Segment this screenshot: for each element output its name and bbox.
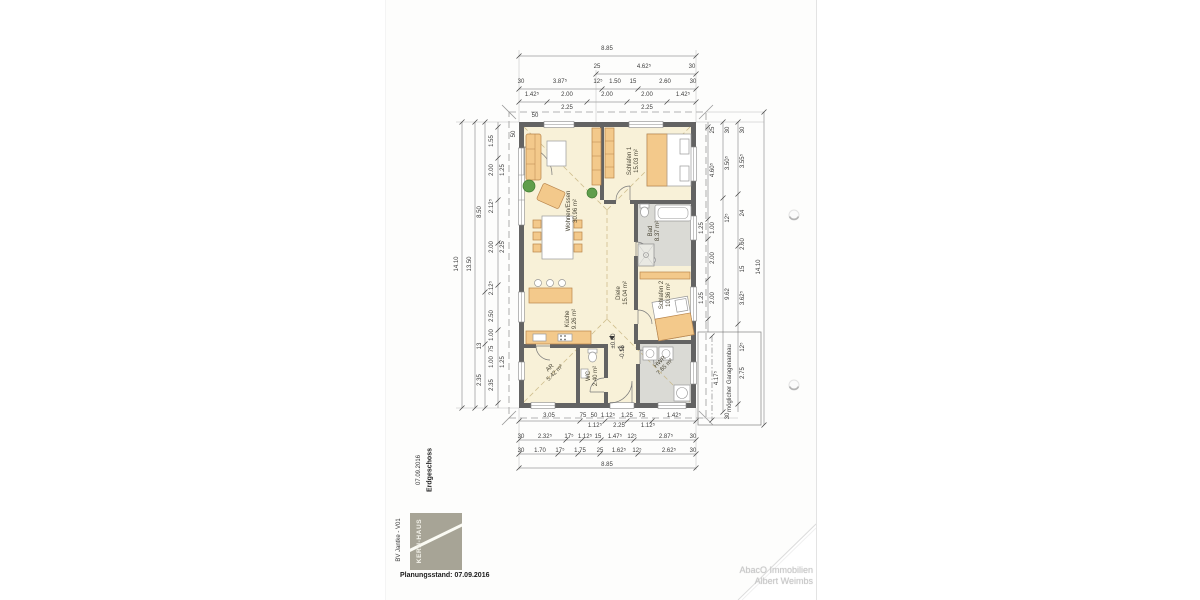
dim-label: 1.47⁵ — [608, 434, 622, 440]
dim-label: 14.10 — [454, 256, 460, 271]
floor-title: Erdgeschoss — [427, 448, 434, 492]
dim-label: 2.75 — [740, 367, 746, 379]
kern-haus-logo: KERN-HAUS — [410, 513, 462, 570]
dim-label: 15 — [740, 266, 746, 273]
room-label-wc: WC 2.40 m² — [586, 366, 600, 386]
dim-label: 1.62⁵ — [612, 448, 626, 454]
dim-label: 3.87⁵ — [553, 79, 567, 85]
dim-label: 13.50 — [467, 256, 473, 271]
logo-text: KERN-HAUS — [417, 519, 424, 563]
room-name: Diele — [616, 286, 623, 300]
floorplan-drawing — [386, 0, 816, 600]
room-label-schlafen1: Schlafen 1 15.03 m² — [627, 147, 641, 175]
dim-label: 2.62⁵ — [662, 448, 676, 454]
dim-label: 4.62⁵ — [637, 64, 651, 70]
dim-label: 2.25 — [613, 423, 625, 429]
room-label-diele: Diele 15.04 m² — [616, 281, 630, 305]
garage-note-label: möglicher Garagenanbau — [727, 344, 733, 412]
scanned-floorplan-page: 8.85 25 4.62⁵ 30 30 3.87⁵ 12⁵ 1.50 15 2.… — [0, 0, 1200, 600]
dim-label: 2.00 — [489, 164, 495, 176]
room-area: 8.37 m² — [655, 221, 662, 241]
punch-holes — [789, 210, 799, 390]
dim-label: 17⁵ — [564, 434, 573, 440]
dim-label: 8.50 — [477, 206, 483, 218]
dim-label: 1.00 — [489, 356, 495, 368]
room-label-wohnen-essen: Wohnen/Essen 30.96 m² — [566, 191, 580, 232]
dim-label: 30 — [690, 79, 697, 85]
dim-label: 2.25 — [500, 241, 506, 253]
dim-label: 75 — [489, 346, 495, 353]
dim-label: 1.25 — [500, 164, 506, 176]
room-area: 9.26 m² — [572, 309, 579, 329]
watermark-line2: Albert Weimbs — [739, 576, 813, 587]
dim-label: 3.05 — [543, 413, 555, 419]
dim-label: 2.00 — [561, 92, 573, 98]
dim-label: 50 — [591, 413, 598, 419]
floorplan-sheet: 8.85 25 4.62⁵ 30 30 3.87⁵ 12⁵ 1.50 15 2.… — [385, 0, 817, 600]
room-name: Küche — [565, 311, 572, 328]
dim-label: 30 — [725, 413, 731, 420]
dim-label: 15 — [630, 79, 637, 85]
dim-label: 13 — [477, 343, 483, 350]
dim-label: 2.00 — [710, 252, 716, 264]
dim-label: 12⁵ — [632, 448, 641, 454]
room-area: 2.40 m² — [593, 366, 600, 386]
dim-label: 12⁵ — [725, 213, 731, 222]
room-area: 15.04 m² — [623, 281, 630, 305]
dim-label: 2.32⁵ — [538, 434, 552, 440]
dim-label: 12⁵ — [740, 342, 746, 351]
dim-label: 3.55⁵ — [740, 154, 746, 168]
dim-label: 1.50 — [609, 79, 621, 85]
dim-label: 2.00 — [710, 292, 716, 304]
dim-label: 75 — [580, 413, 587, 419]
dim-label: 9.62 — [725, 288, 731, 300]
dim-label: 1.25 — [699, 222, 705, 234]
dim-label: 12⁵ — [627, 434, 636, 440]
dim-label: 17⁵ — [555, 448, 564, 454]
dim-label: 2.87⁵ — [659, 434, 673, 440]
dim-label: 30 — [690, 434, 697, 440]
garage-dim-label: 4.17⁵ — [714, 371, 720, 385]
dim-label: 50 — [532, 113, 539, 119]
dim-label: 1.42⁵ — [667, 413, 681, 419]
dim-label: 2.25 — [641, 105, 653, 111]
room-area: 10.36 m² — [666, 283, 673, 307]
dim-label: 2.00 — [601, 92, 613, 98]
dim-label: 1.00 — [710, 222, 716, 234]
page-corner-fold — [738, 524, 816, 600]
dim-label: 2.50 — [489, 310, 495, 322]
dim-label: 15 — [595, 434, 602, 440]
dim-label: 3.62⁵ — [740, 291, 746, 305]
room-area: 15.03 m² — [634, 149, 641, 173]
dim-label: 12⁵ — [593, 79, 602, 85]
dim-label: 8.85 — [601, 462, 613, 468]
project-label: BV Jantke - V01 — [396, 518, 402, 561]
watermark-line1: AbacO Immobilien — [739, 565, 813, 576]
room-label-schlafen2: Schlafen 2 10.36 m² — [659, 281, 673, 309]
dim-label: 2.60 — [740, 238, 746, 250]
dim-label: 1.25 — [699, 292, 705, 304]
dim-label: 2.00 — [489, 241, 495, 253]
dim-label: 30 — [518, 434, 525, 440]
level-label-entry: -0.16 — [620, 345, 626, 359]
room-name: Wohnen/Essen — [566, 191, 573, 232]
room-name: WC — [586, 371, 593, 381]
dim-label: 75 — [639, 413, 646, 419]
dim-label: 50 — [511, 131, 517, 138]
dim-label: 1.55 — [489, 135, 495, 147]
dim-label: 25 — [597, 448, 604, 454]
dim-label: 2.60 — [659, 79, 671, 85]
dim-label: 2.35 — [489, 379, 495, 391]
dim-label: 1.25 — [621, 413, 633, 419]
dim-label: 2.12⁵ — [489, 281, 495, 295]
room-label-bad: Bad 8.37 m² — [648, 221, 662, 241]
dim-label: 14.10 — [756, 259, 762, 274]
dim-label: 1.42⁵ — [676, 92, 690, 98]
dim-label: 1.12⁵ — [588, 423, 602, 429]
dim-label: 30 — [518, 79, 525, 85]
dim-label: 2.00 — [641, 92, 653, 98]
dim-label: 1.00 — [489, 329, 495, 341]
dim-label: 24 — [740, 210, 746, 217]
dim-label: 1.75 — [574, 448, 586, 454]
dim-label: 25 — [594, 64, 601, 70]
dim-label: 1.12⁵ — [601, 413, 615, 419]
dim-label: 1.12⁵ — [578, 434, 592, 440]
dim-label: 2.35 — [477, 374, 483, 386]
dim-label: 4.60⁵ — [710, 163, 716, 177]
dim-label: 30 — [740, 127, 746, 134]
dim-label: 1.25 — [500, 356, 506, 368]
dim-label: 8.85 — [601, 46, 613, 52]
dim-label: 30 — [725, 127, 731, 134]
dim-label: 30 — [518, 448, 525, 454]
planning-status: Planungsstand: 07.09.2016 — [400, 572, 489, 579]
room-label-kueche: Küche 9.26 m² — [565, 309, 579, 329]
dim-label: 30 — [690, 448, 697, 454]
dim-label: 1.70 — [534, 448, 546, 454]
room-area: 30.96 m² — [573, 199, 580, 223]
floor-date: 07.09.2016 — [416, 455, 422, 485]
room-name: Bad — [648, 226, 655, 237]
dim-label: 25 — [710, 127, 716, 134]
dim-label: 3.50⁵ — [725, 156, 731, 170]
watermark: AbacO Immobilien Albert Weimbs — [739, 565, 813, 587]
room-name: Schlafen 2 — [659, 281, 666, 309]
level-label-ffb: ±0.00 — [611, 334, 617, 349]
dim-label: 1.42⁵ — [525, 92, 539, 98]
dim-label: 1.12⁵ — [641, 423, 655, 429]
room-name: Schlafen 1 — [627, 147, 634, 175]
dim-label: 2.12⁵ — [489, 199, 495, 213]
dim-label: 2.25 — [561, 105, 573, 111]
dim-label: 30 — [689, 64, 696, 70]
